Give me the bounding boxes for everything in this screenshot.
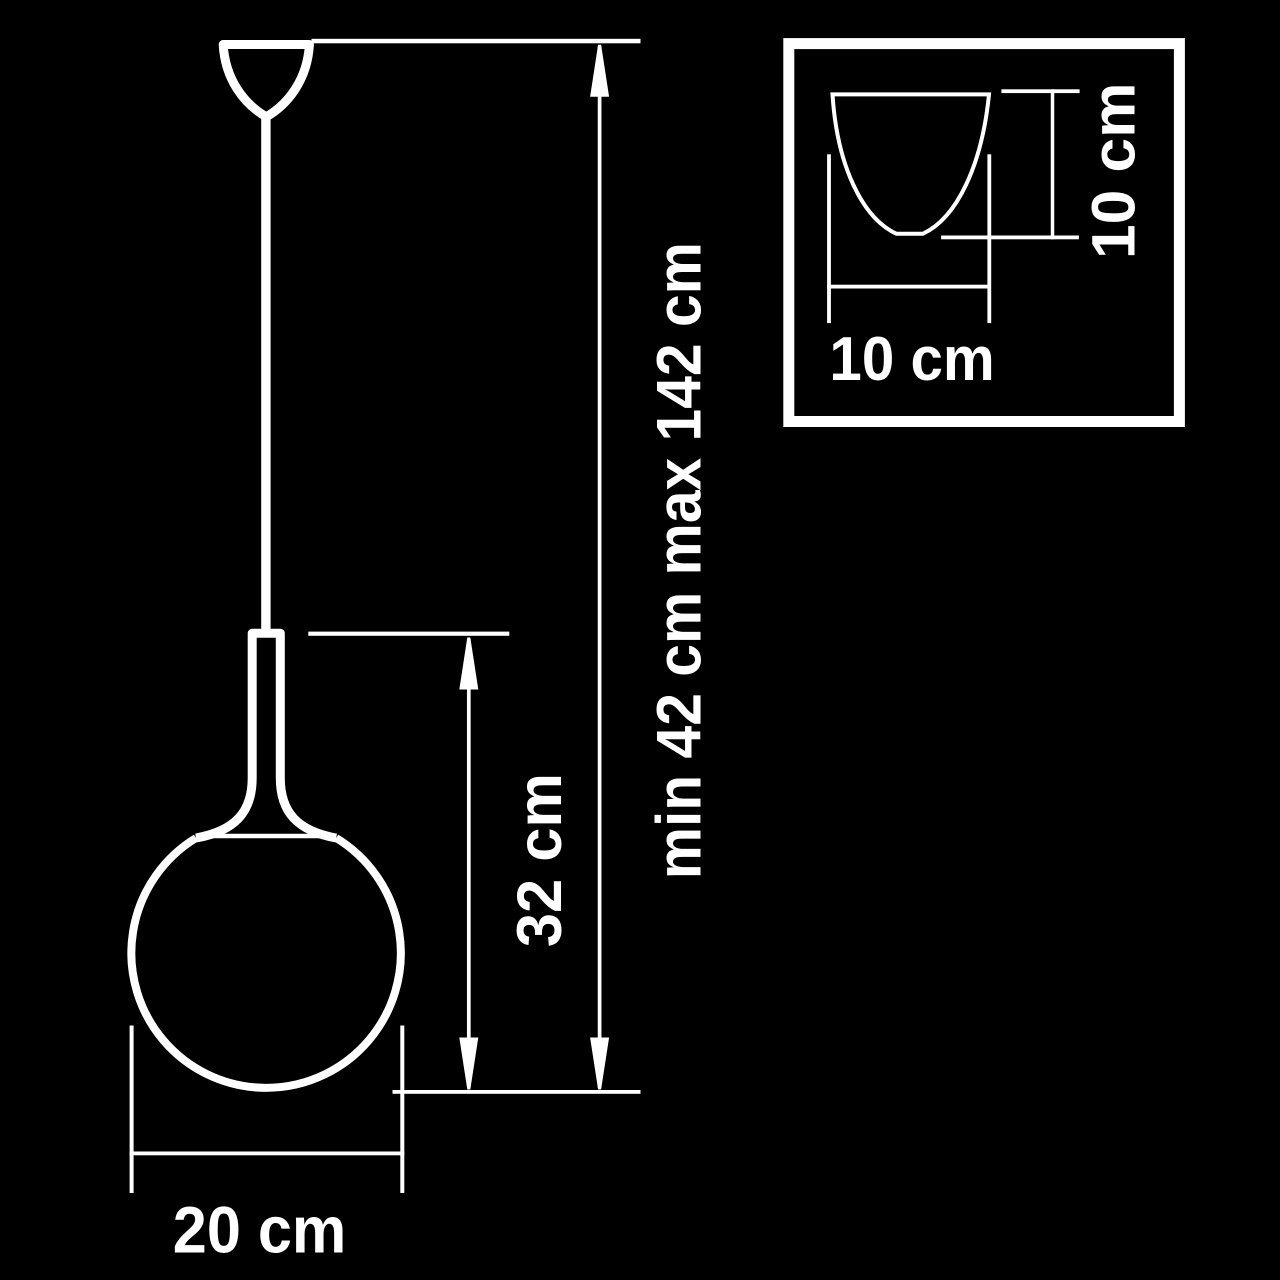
svg-text:min 42 cm max 142 cm: min 42 cm max 142 cm [644,242,714,879]
svg-text:32 cm: 32 cm [505,773,575,947]
svg-text:20 cm: 20 cm [173,1192,347,1267]
svg-text:10 cm: 10 cm [1080,82,1148,259]
svg-text:10 cm: 10 cm [829,324,994,393]
